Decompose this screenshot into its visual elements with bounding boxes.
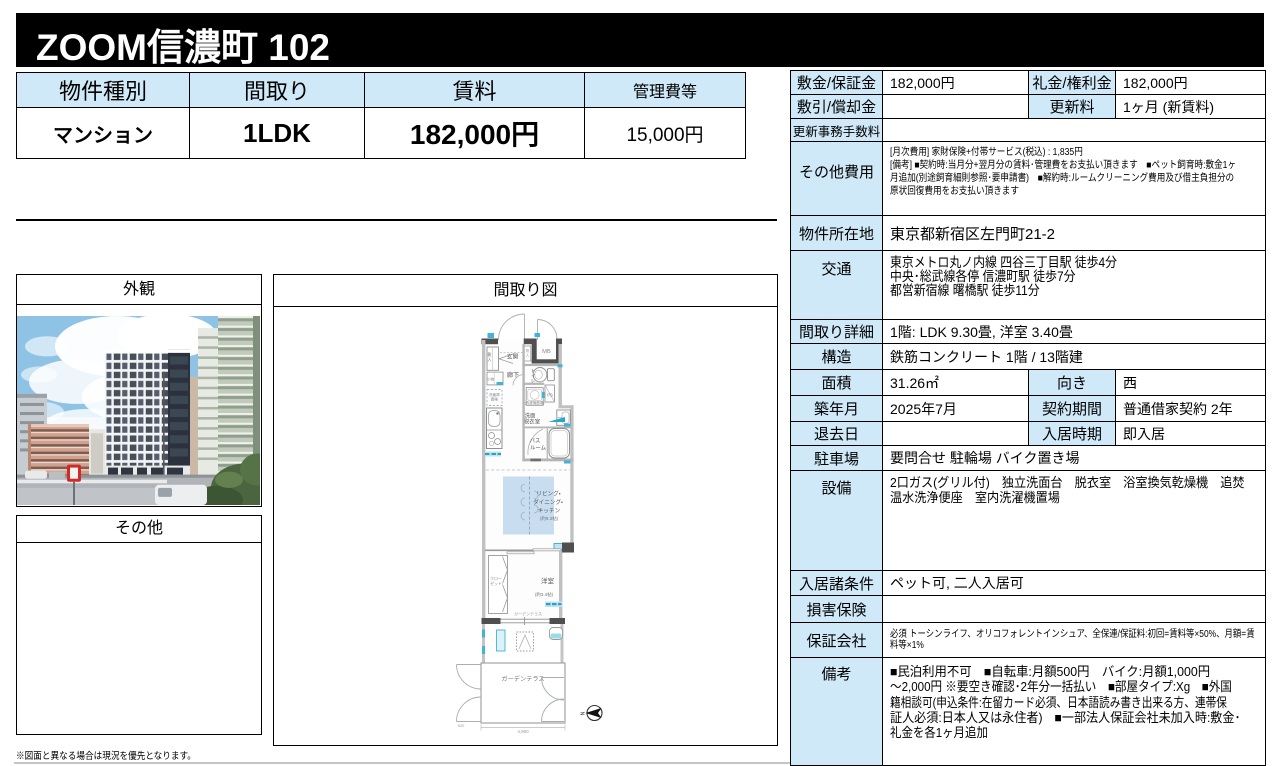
svg-text:ルーム: ルーム [530,445,547,452]
svg-text:PS: PS [547,393,553,398]
svg-text:バス: バス [530,438,541,445]
svg-text:N: N [581,711,587,715]
svg-text:ガーデンテラス: ガーデンテラス [501,675,544,683]
svg-text:脱衣室: 脱衣室 [524,418,541,426]
svg-text:レ: レ [531,379,536,384]
svg-text:洋室: 洋室 [541,576,555,585]
svg-text:入: 入 [488,357,492,362]
svg-text:リビング・: リビング・ [536,490,560,498]
svg-text:冷蔵庫: 冷蔵庫 [489,392,500,397]
svg-text:(約9.3帖): (約9.3帖) [540,515,559,522]
svg-text:(約3.4帖): (約3.4帖) [535,591,554,598]
svg-text:ガーデンテラス: ガーデンテラス [514,611,542,617]
svg-text:920: 920 [458,723,465,728]
svg-text:置場: 置場 [491,397,499,402]
svg-text:キッチン: キッチン [538,508,561,515]
svg-text:ゼット: ゼット [490,581,502,586]
svg-text:クロー: クロー [490,576,502,581]
svg-text:4,950: 4,950 [517,729,529,734]
svg-text:廊下: 廊下 [507,371,519,379]
svg-text:洗面: 洗面 [525,412,536,420]
svg-text:玄関: 玄関 [507,353,519,361]
svg-text:ダイニング・: ダイニング・ [533,498,563,506]
svg-text:(洗濯機置場): (洗濯機置場) [525,400,545,405]
svg-text:小物: 小物 [487,377,495,382]
svg-text:MB: MB [542,349,551,355]
